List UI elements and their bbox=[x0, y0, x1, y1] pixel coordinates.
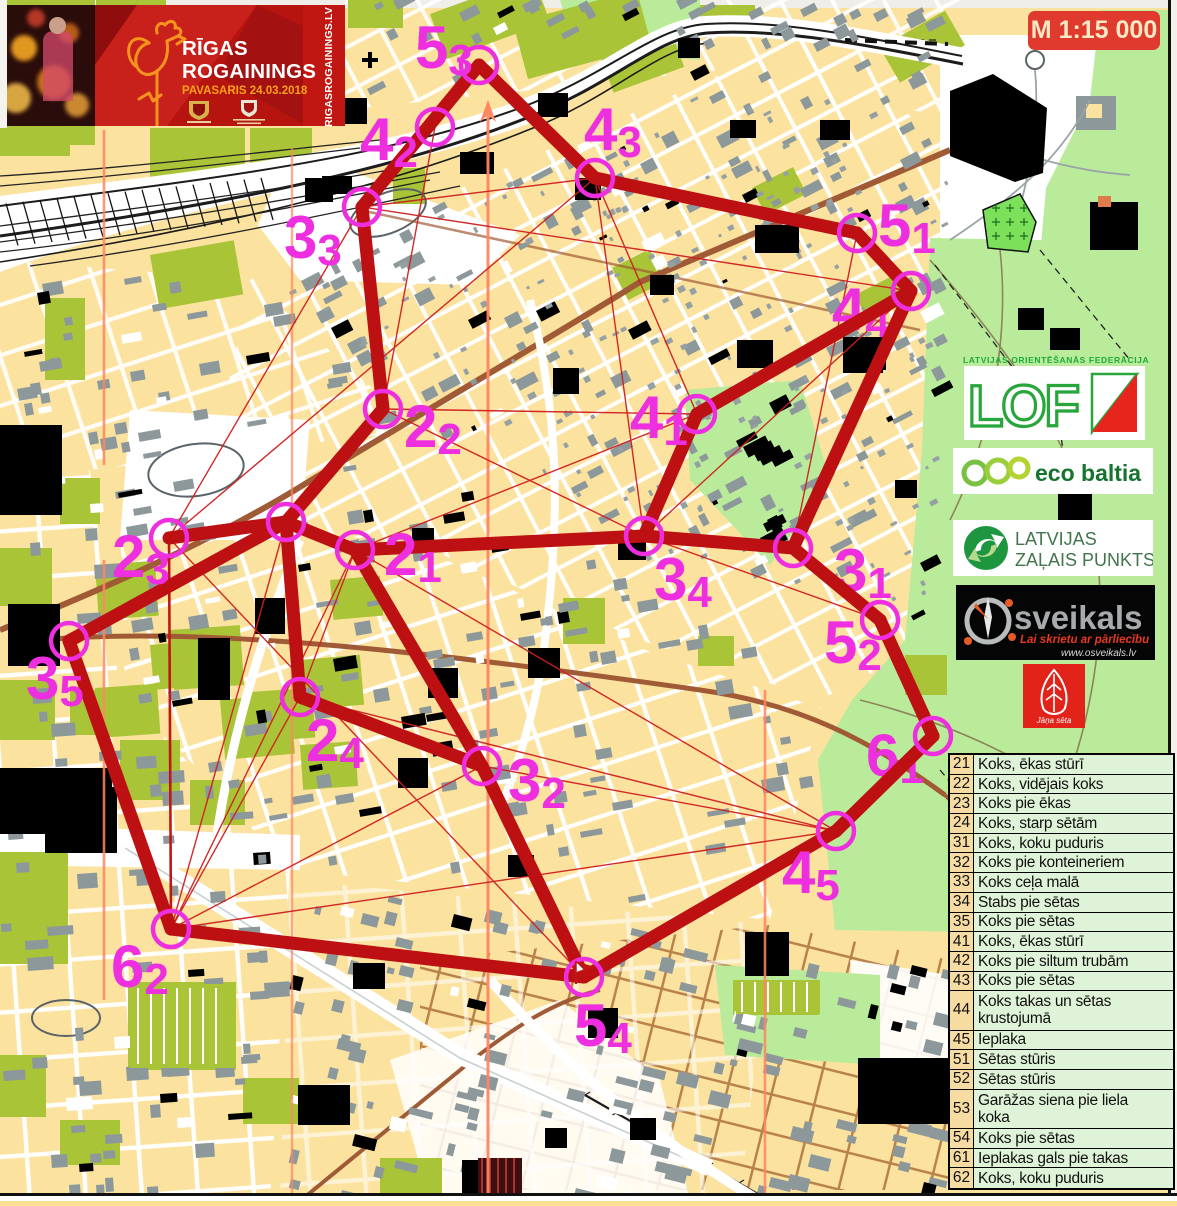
svg-text:www.osveikals.lv: www.osveikals.lv bbox=[1061, 648, 1137, 659]
svg-text:eco baltia: eco baltia bbox=[1035, 460, 1141, 486]
svg-text:LOF: LOF bbox=[968, 374, 1079, 439]
svg-text:sveikals: sveikals bbox=[1014, 599, 1142, 636]
svg-text:LATVIJAS: LATVIJAS bbox=[1015, 529, 1097, 549]
svg-text:Jāņa sēta: Jāņa sēta bbox=[1036, 716, 1072, 725]
svg-text:Lai skrietu ar pārliecību: Lai skrietu ar pārliecību bbox=[1020, 634, 1149, 646]
svg-text:ZAĻAIS PUNKTS: ZAĻAIS PUNKTS bbox=[1015, 550, 1153, 570]
